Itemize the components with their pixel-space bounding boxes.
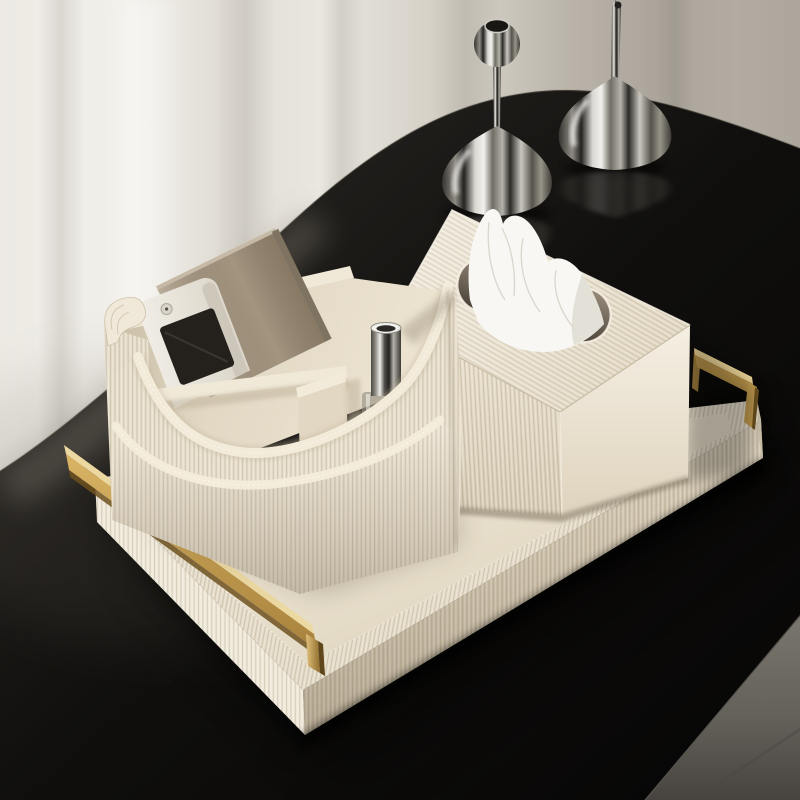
scene	[0, 0, 800, 800]
vase-right-neck-tip	[615, 2, 622, 9]
product-photo	[0, 0, 800, 800]
atomizer-cap-opening	[377, 325, 396, 331]
vase-left-opening	[485, 20, 509, 33]
vase-left-stem	[493, 62, 501, 132]
